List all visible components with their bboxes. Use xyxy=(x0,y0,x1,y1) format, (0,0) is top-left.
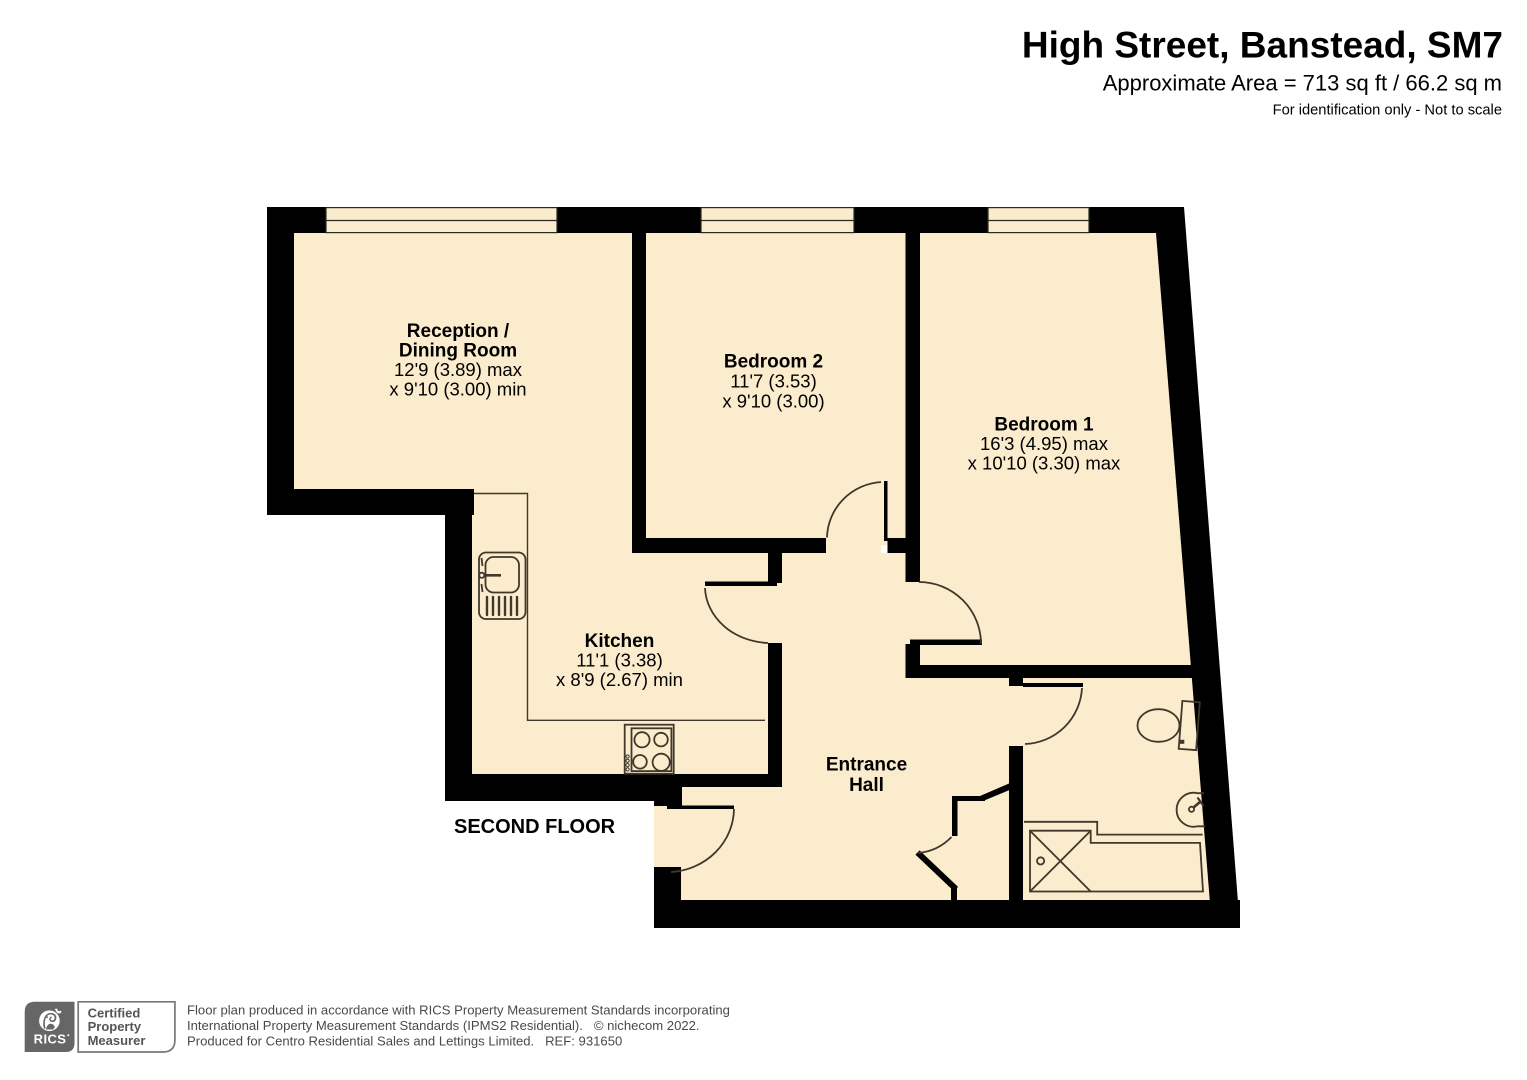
svg-text:RICS: RICS xyxy=(34,1032,67,1047)
svg-text:Hall: Hall xyxy=(849,775,884,796)
svg-text:Produced for Centro Residentia: Produced for Centro Residential Sales an… xyxy=(187,1034,622,1049)
svg-text:Measurer: Measurer xyxy=(88,1033,146,1048)
svg-text:Bedroom 2: Bedroom 2 xyxy=(724,352,823,373)
svg-text:Approximate Area = 713 sq ft /: Approximate Area = 713 sq ft / 66.2 sq m xyxy=(1103,71,1502,96)
svg-text:11'1 (3.38): 11'1 (3.38) xyxy=(576,650,663,671)
svg-text:SECOND FLOOR: SECOND FLOOR xyxy=(454,816,616,838)
svg-text:12'9 (3.89) max: 12'9 (3.89) max xyxy=(394,359,523,380)
svg-text:Reception /: Reception / xyxy=(407,321,510,342)
svg-text:11'7 (3.53): 11'7 (3.53) xyxy=(730,371,817,392)
svg-text:High Street, Banstead, SM7: High Street, Banstead, SM7 xyxy=(1022,25,1503,66)
svg-text:International Property Measure: International Property Measurement Stand… xyxy=(187,1018,700,1033)
svg-text:Floor plan produced in accorda: Floor plan produced in accordance with R… xyxy=(187,1003,730,1018)
svg-text:For identification only - Not: For identification only - Not to scale xyxy=(1273,103,1502,119)
svg-text:x 10'10 (3.30) max: x 10'10 (3.30) max xyxy=(968,453,1121,474)
svg-text:x 9'10 (3.00) min: x 9'10 (3.00) min xyxy=(389,379,526,400)
svg-text:16'3 (4.95) max: 16'3 (4.95) max xyxy=(980,433,1109,454)
svg-text:Entrance: Entrance xyxy=(826,755,907,776)
svg-text:x 9'10 (3.00): x 9'10 (3.00) xyxy=(722,391,824,412)
svg-text:x 8'9 (2.67) min: x 8'9 (2.67) min xyxy=(556,669,683,690)
